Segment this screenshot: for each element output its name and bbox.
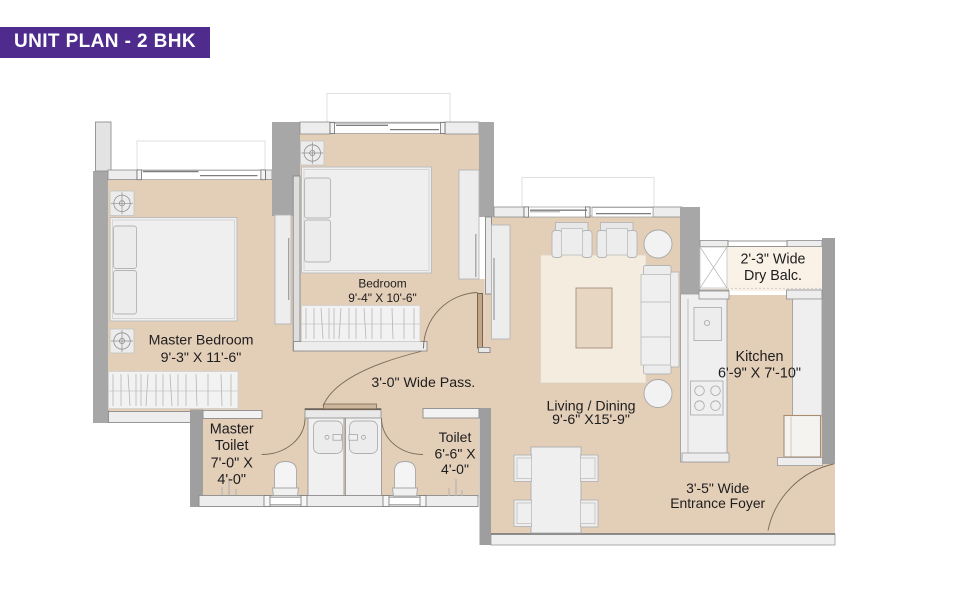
svg-text:Toilet: Toilet <box>215 438 249 454</box>
svg-text:9'-6" X15'-9": 9'-6" X15'-9" <box>552 412 630 428</box>
svg-text:9'-3" X 11'-6": 9'-3" X 11'-6" <box>161 350 242 366</box>
svg-text:Kitchen: Kitchen <box>736 349 784 365</box>
svg-text:Master Bedroom: Master Bedroom <box>149 333 254 349</box>
svg-text:7'-0" X: 7'-0" X <box>211 456 254 472</box>
svg-text:3'-5" Wide: 3'-5" Wide <box>686 480 749 496</box>
svg-text:4'-0": 4'-0" <box>217 472 246 488</box>
svg-text:Entrance Foyer: Entrance Foyer <box>670 495 765 511</box>
svg-text:2'-3" Wide: 2'-3" Wide <box>740 252 805 268</box>
svg-text:3'-0" Wide Pass.: 3'-0" Wide Pass. <box>371 375 475 391</box>
svg-text:Bedroom: Bedroom <box>358 277 406 291</box>
svg-text:Master: Master <box>210 422 254 438</box>
svg-text:6'-6" X: 6'-6" X <box>434 445 476 461</box>
svg-text:9'-4" X 10'-6": 9'-4" X 10'-6" <box>348 291 417 305</box>
svg-text:Dry Balc.: Dry Balc. <box>744 268 802 284</box>
svg-text:4'-0": 4'-0" <box>441 461 469 477</box>
svg-text:6'-9" X 7'-10": 6'-9" X 7'-10" <box>718 365 801 381</box>
svg-text:Toilet: Toilet <box>439 429 472 445</box>
